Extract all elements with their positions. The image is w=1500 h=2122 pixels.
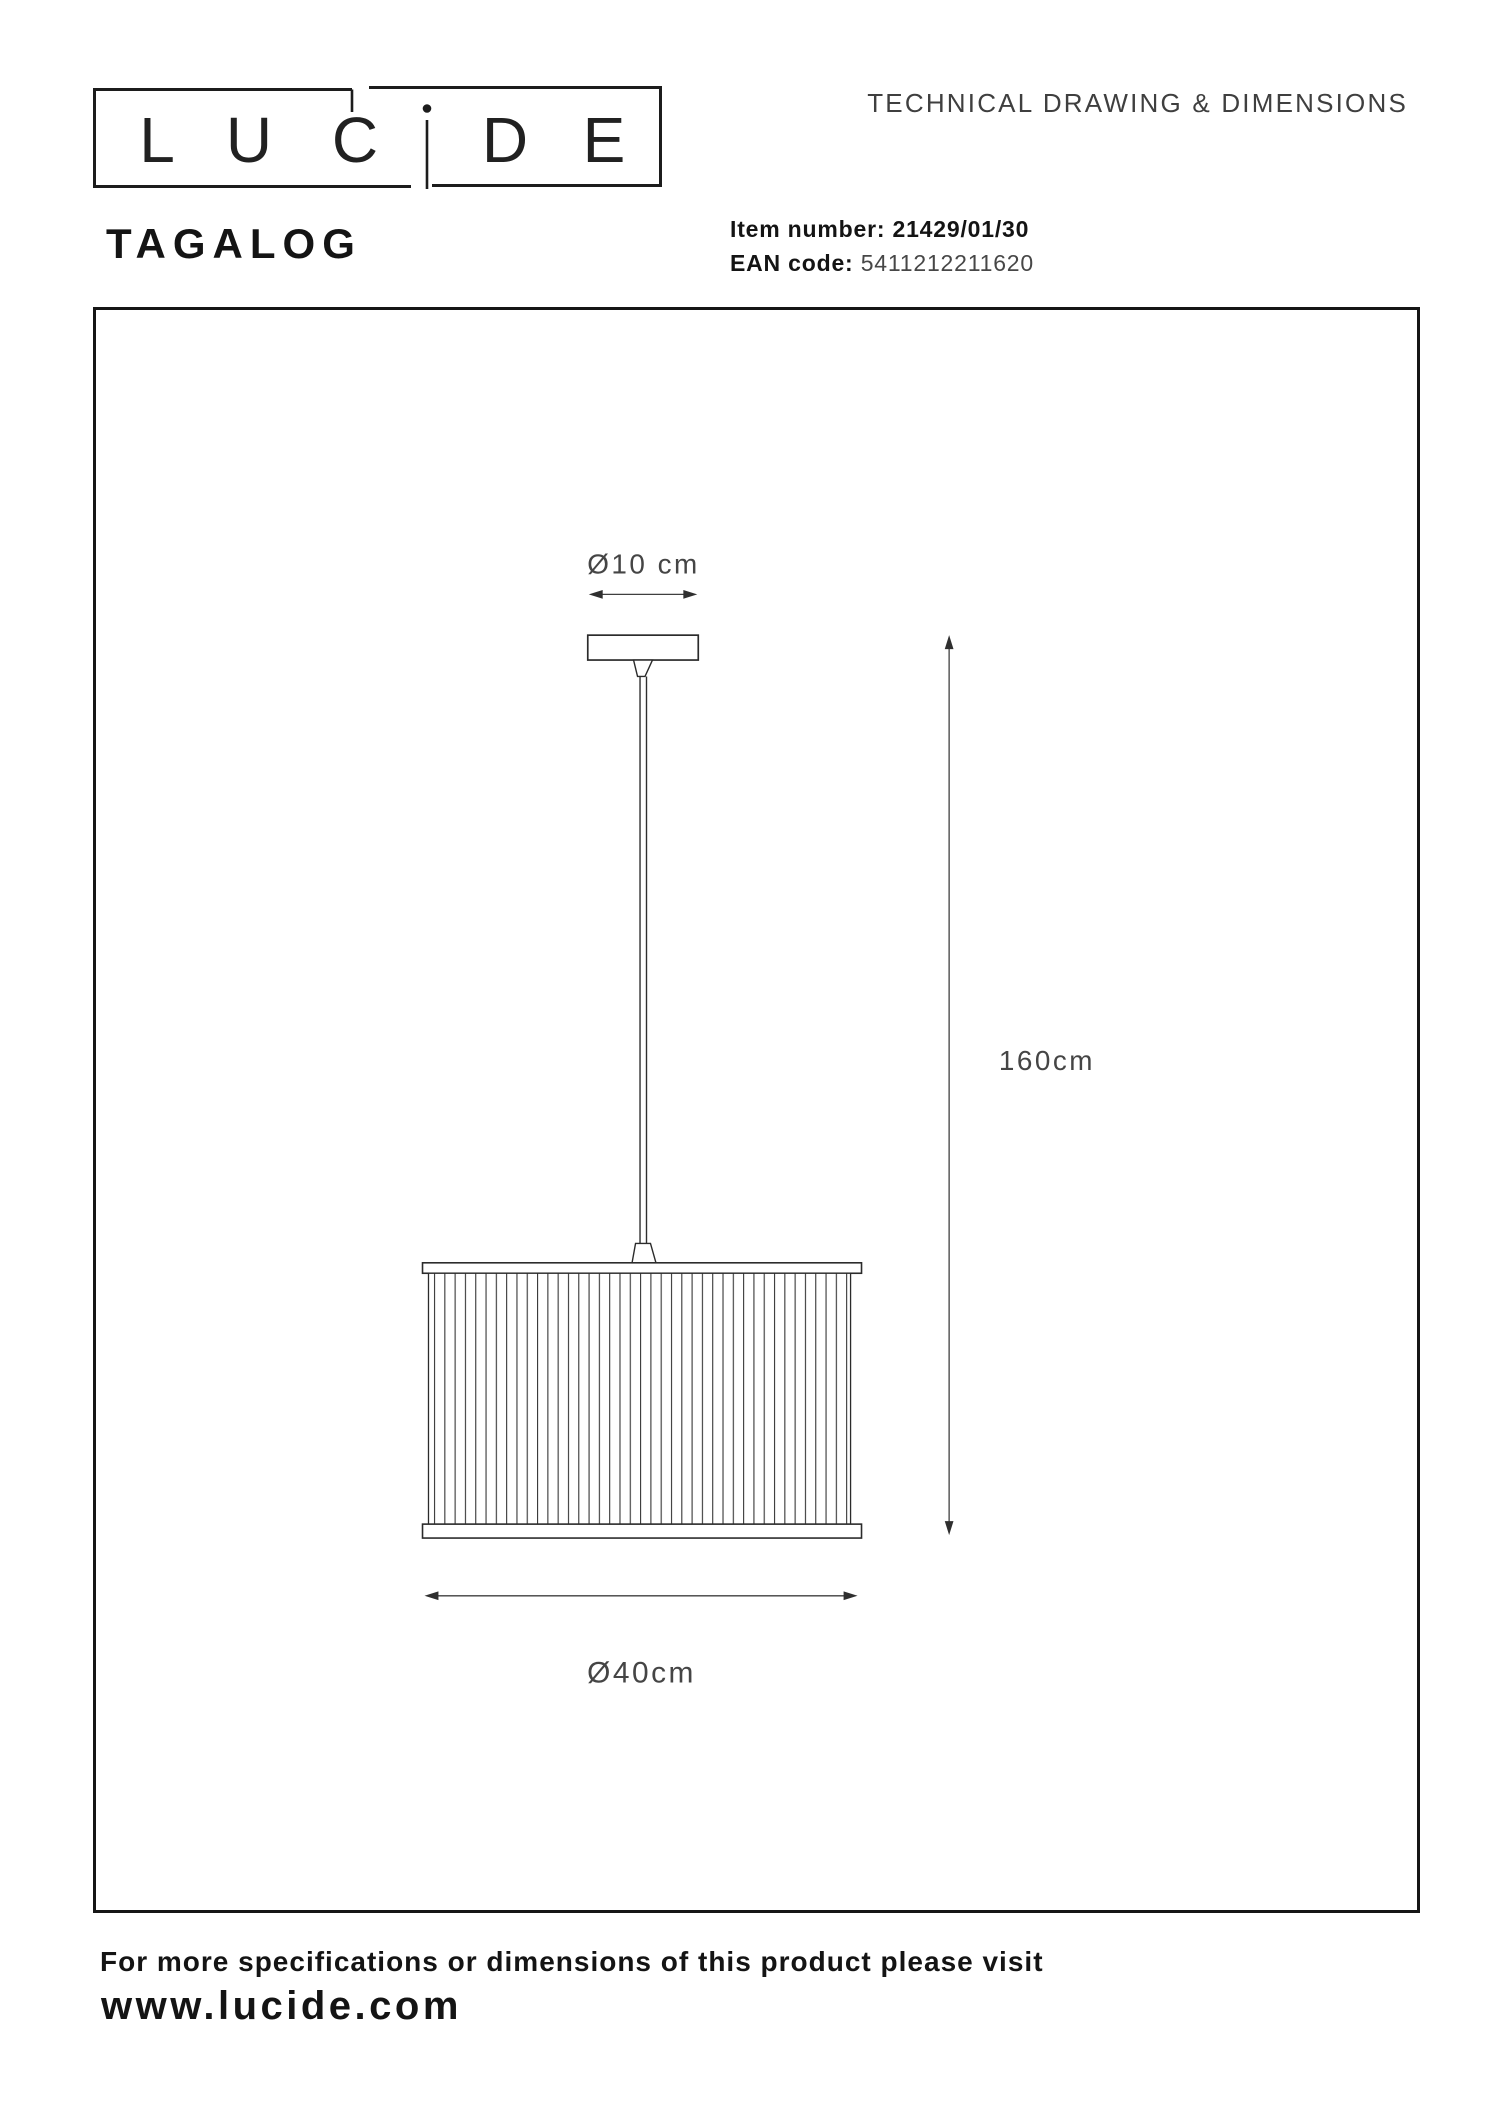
page: L U C D E TECHNICAL DRAWING & DIMENSIONS…	[0, 0, 1500, 2122]
logo-letter-l: L	[139, 104, 175, 176]
arrow-down-icon	[945, 1521, 954, 1535]
pendant-cable	[640, 676, 646, 1244]
cord-grip	[634, 660, 653, 676]
lampshade-bottom-rim	[423, 1524, 862, 1538]
ean-code-value: 5411212211620	[861, 250, 1034, 276]
dim-bottom-arrow	[425, 1591, 858, 1600]
lampshade-top-rim	[423, 1263, 862, 1273]
lampshade-body	[428, 1273, 850, 1524]
arrow-left-icon	[425, 1591, 439, 1600]
item-number-row: Item number: 21429/01/30	[730, 212, 1034, 246]
arrow-right-icon	[844, 1591, 858, 1600]
item-info-block: Item number: 21429/01/30 EAN code: 54112…	[730, 212, 1034, 280]
drawing-box: Ø10 cm	[93, 307, 1420, 1913]
dim-height-label: 160cm	[999, 1045, 1095, 1076]
dim-top-arrow	[589, 590, 698, 599]
arrow-up-icon	[945, 635, 954, 649]
dim-height-arrow	[945, 635, 954, 1535]
sheet-title: TECHNICAL DRAWING & DIMENSIONS	[867, 88, 1408, 119]
item-number-value: 21429/01/30	[893, 216, 1030, 242]
item-number-label: Item number:	[730, 216, 885, 242]
logo-letter-u: U	[226, 104, 272, 176]
shade-cone	[632, 1243, 656, 1262]
footer-note: For more specifications or dimensions of…	[100, 1946, 1044, 1978]
lucide-logo: L U C D E	[93, 86, 662, 189]
logo-letter-c: C	[332, 104, 378, 176]
product-name: TAGALOG	[106, 220, 362, 268]
logo-letter-e: E	[583, 104, 626, 176]
logo-letter-i-dot	[423, 104, 432, 113]
technical-drawing: Ø10 cm	[96, 310, 1417, 1910]
ceiling-canopy	[588, 635, 698, 660]
arrow-right-icon	[683, 590, 697, 599]
dim-bottom-label: Ø40cm	[587, 1656, 696, 1689]
logo-letter-d: D	[482, 104, 528, 176]
ean-code-row: EAN code: 5411212211620	[730, 246, 1034, 280]
ean-code-label: EAN code:	[730, 250, 854, 276]
dim-top-label: Ø10 cm	[587, 548, 699, 579]
website-url: www.lucide.com	[101, 1984, 462, 2029]
arrow-left-icon	[589, 590, 603, 599]
